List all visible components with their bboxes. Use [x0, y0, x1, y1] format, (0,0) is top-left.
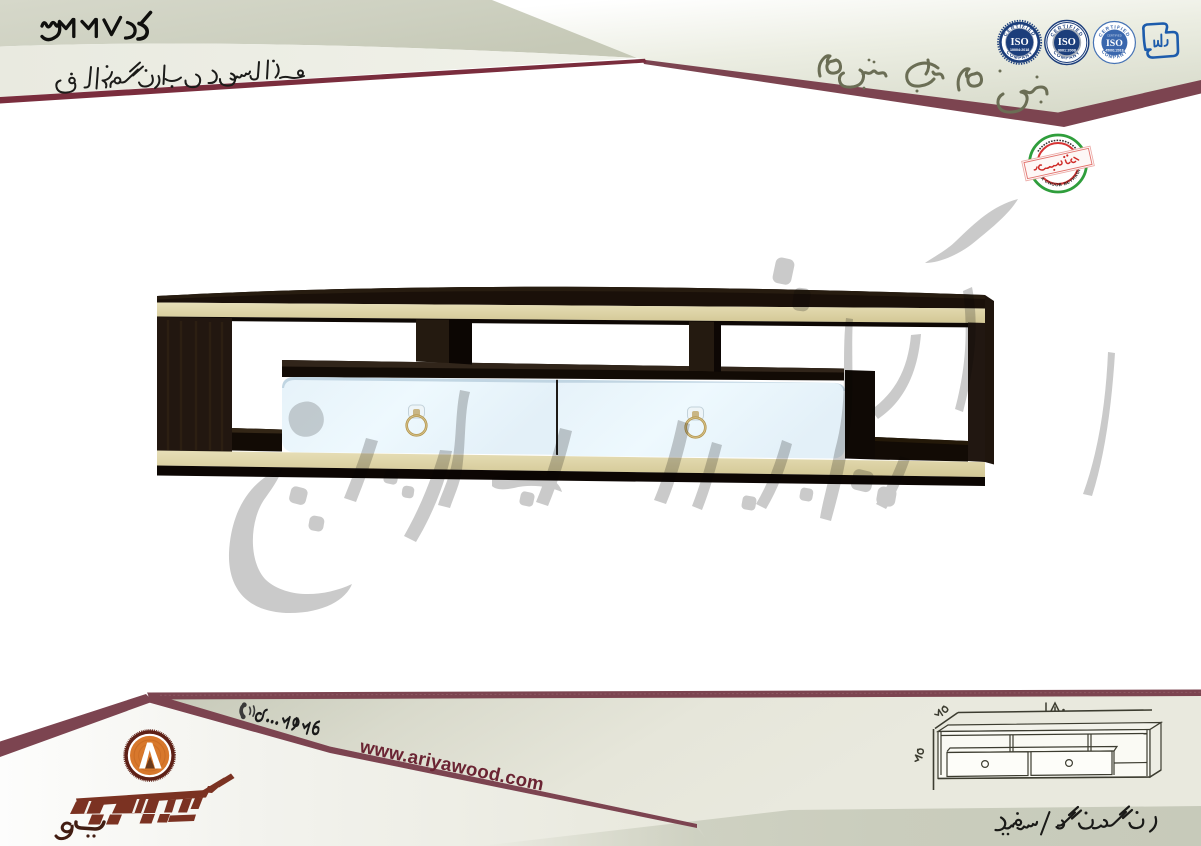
svg-text:ISO: ISO [1011, 37, 1029, 48]
svg-text:9001:2008: 9001:2008 [1058, 48, 1076, 52]
svg-text:ISO: ISO [1058, 37, 1076, 48]
svg-text:ISO: ISO [1106, 38, 1123, 49]
svg-text:45001:2018: 45001:2018 [1105, 49, 1123, 53]
svg-text:CERTIFIED: CERTIFIED [1107, 33, 1122, 37]
svg-text:10004:2018: 10004:2018 [1010, 48, 1029, 52]
